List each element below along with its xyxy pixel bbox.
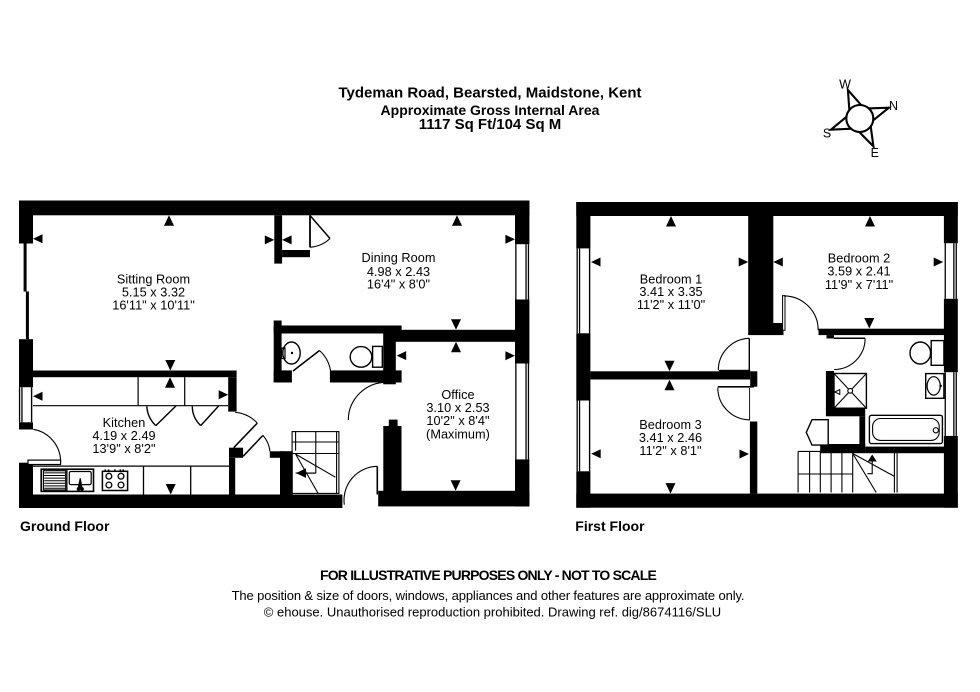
svg-text:3.41 x 2.46: 3.41 x 2.46 <box>639 431 702 445</box>
svg-text:Ground Floor: Ground Floor <box>20 518 110 534</box>
svg-text:Tydeman Road, Bearsted, Maidst: Tydeman Road, Bearsted, Maidstone, Kent <box>338 85 641 102</box>
svg-text:1117 Sq Ft/104 Sq M: 1117 Sq Ft/104 Sq M <box>419 116 562 133</box>
svg-text:3.59 x 2.41: 3.59 x 2.41 <box>827 265 890 279</box>
svg-text:13'9" x 8'2": 13'9" x 8'2" <box>92 442 155 456</box>
svg-text:4.19 x 2.49: 4.19 x 2.49 <box>92 429 155 443</box>
svg-text:11'9" x 7'11": 11'9" x 7'11" <box>825 278 893 292</box>
svg-text:E: E <box>871 146 879 160</box>
svg-text:11'2" x 8'1": 11'2" x 8'1" <box>639 444 701 458</box>
svg-text:10'2" x 8'4": 10'2" x 8'4" <box>426 414 489 428</box>
svg-text:Dining Room: Dining Room <box>362 251 436 265</box>
svg-text:16'4" x 8'0": 16'4" x 8'0" <box>367 278 430 292</box>
svg-text:W: W <box>839 78 851 92</box>
svg-text:The position & size of doors,: The position & size of doors, windows, a… <box>232 588 745 603</box>
svg-text:11'2" x 11'0": 11'2" x 11'0" <box>637 298 705 312</box>
svg-text:3.41 x 3.35: 3.41 x 3.35 <box>639 285 702 299</box>
svg-text:N: N <box>889 99 898 113</box>
svg-text:3.10 x 2.53: 3.10 x 2.53 <box>426 401 489 415</box>
svg-text:Office: Office <box>441 388 474 402</box>
svg-text:Bedroom 3: Bedroom 3 <box>639 418 702 432</box>
svg-text:FOR ILLUSTRATIVE PURPOSES ONLY: FOR ILLUSTRATIVE PURPOSES ONLY - NOT TO … <box>320 567 657 583</box>
svg-text:5.15 x 3.32: 5.15 x 3.32 <box>122 286 185 300</box>
svg-text:Kitchen: Kitchen <box>103 416 146 430</box>
svg-text:S: S <box>823 127 831 141</box>
svg-text:Bedroom 2: Bedroom 2 <box>828 252 891 266</box>
svg-text:© ehouse. Unauthorised reprodu: © ehouse. Unauthorised reproduction proh… <box>264 605 721 620</box>
svg-text:First Floor: First Floor <box>575 518 645 534</box>
svg-text:(Maximum): (Maximum) <box>426 428 490 442</box>
svg-text:Sitting Room: Sitting Room <box>117 273 190 287</box>
svg-text:16'11" x 10'11": 16'11" x 10'11" <box>112 299 195 313</box>
